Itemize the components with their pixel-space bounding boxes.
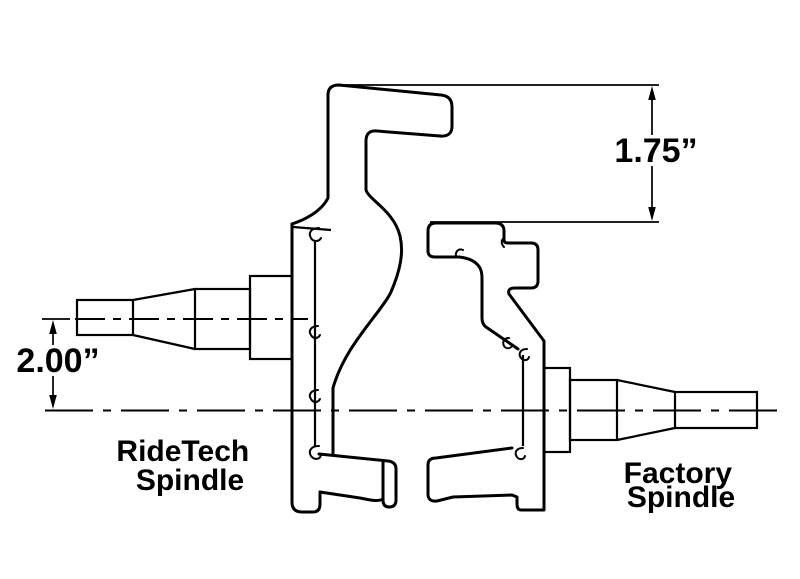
centerlines: [45, 319, 777, 411]
diagram-canvas: 1.75” 2.00” RideTech Spindle Factory Spi…: [0, 0, 800, 579]
factory-clip-mark-top: [520, 349, 529, 360]
ridetech-clip-mark-bottom: [310, 446, 321, 459]
arrow-up-icon: [648, 86, 656, 100]
dimension-drop-height-label: 2.00”: [16, 342, 99, 380]
dimension-arm-height: 1.75”: [336, 85, 698, 222]
factory-spindle-label-line2: Spindle: [627, 481, 735, 514]
ridetech-axle-tip: [77, 300, 133, 335]
factory-clip-mark-bottom: [516, 448, 525, 459]
dimension-drop-height: 2.00”: [16, 319, 99, 409]
ridetech-axle-flange: [250, 276, 292, 359]
factory-stub-axle: [544, 368, 757, 452]
ridetech-spindle-label: RideTech Spindle: [116, 435, 257, 497]
arrow-down-icon: [49, 395, 57, 409]
arrow-down-icon: [648, 207, 656, 221]
arrow-up-icon: [49, 320, 57, 334]
dimension-arm-height-label: 1.75”: [614, 132, 697, 170]
factory-spindle-label: Factory Spindle: [624, 457, 741, 514]
factory-neck-outline: [428, 251, 518, 349]
ridetech-lower-arm-bottom-edge: [320, 492, 383, 501]
spindle-comparison-diagram: 1.75” 2.00” RideTech Spindle Factory Spi…: [0, 0, 800, 579]
ridetech-spindle-label-line2: Spindle: [136, 464, 244, 497]
factory-body-outline: [428, 223, 544, 510]
ridetech-stub-axle: [77, 276, 292, 359]
